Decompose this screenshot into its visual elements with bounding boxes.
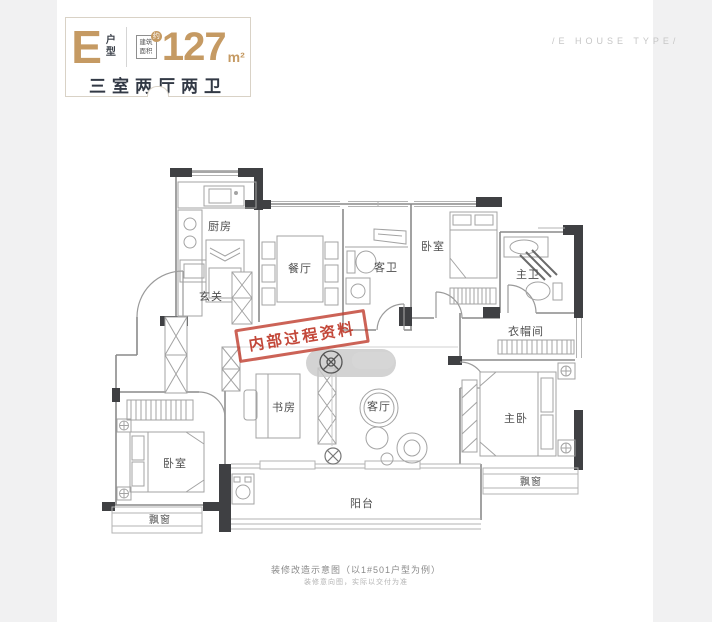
area-label-line2: 面积	[140, 47, 153, 56]
caption-line1: 装修改造示意图（以1#501户型为例）	[0, 563, 712, 576]
room-label-dining: 餐厅	[288, 261, 312, 275]
room-label-guest-bath: 客卫	[374, 260, 398, 274]
floor-plan-page: { "colors": { "accent_gold": "#c59a63", …	[0, 0, 712, 622]
house-type-badge: E 户型 建筑 面积 约 127 m² 三室两厅两卫	[65, 17, 251, 97]
badge-divider	[126, 27, 127, 67]
room-label-master-bath: 主卫	[516, 268, 540, 281]
badge-notch	[147, 86, 169, 97]
room-label-foyer: 玄关	[199, 289, 223, 303]
caption-line2: 装修意向图，实际以交付为准	[0, 577, 712, 587]
area-unit: m²	[228, 49, 245, 65]
area-value: 127	[162, 29, 226, 65]
type-letter: E	[71, 27, 102, 67]
room-label-bedroom-left: 卧室	[163, 456, 187, 470]
house-type-english-caption: /E HOUSE TYPE/	[552, 36, 679, 46]
room-label-cloakroom: 衣帽间	[508, 324, 544, 338]
room-label-kitchen: 厨房	[208, 220, 232, 233]
room-label-bedroom-top: 卧室	[421, 239, 445, 253]
room-label-balcony: 阳台	[350, 496, 374, 510]
approx-badge: 约	[151, 31, 162, 42]
floor-lamp-icon	[325, 448, 341, 464]
room-label-study: 书房	[272, 401, 296, 414]
room-label-living: 客厅	[367, 399, 391, 413]
type-label: 户型	[106, 35, 119, 60]
room-label-bay-right: 飘窗	[520, 475, 542, 488]
area-label-box: 建筑 面积 约	[136, 35, 157, 59]
room-label-bay-left: 飘窗	[149, 513, 171, 526]
room-label-master-bedroom: 主卧	[504, 412, 528, 425]
